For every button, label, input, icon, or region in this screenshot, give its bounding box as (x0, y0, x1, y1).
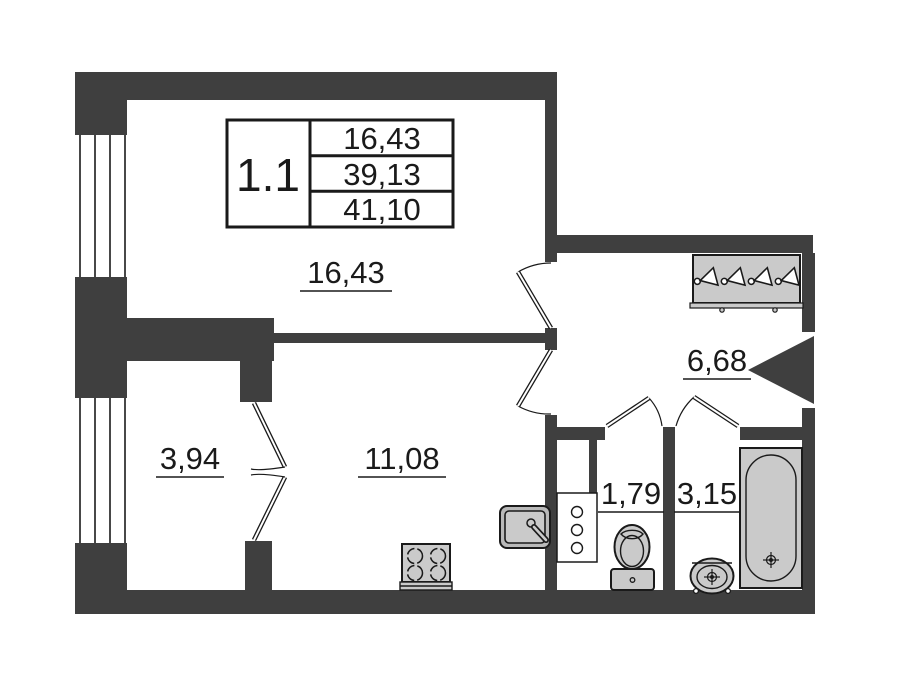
wc-door (607, 398, 662, 426)
toilet (611, 525, 654, 590)
floor-plan: 1.1 16,43 39,13 41,10 16,43 3,94 11,08 6… (0, 0, 900, 690)
bathtub (740, 448, 802, 588)
balcony-door (251, 403, 285, 540)
bathroom-sink (691, 559, 734, 594)
kitchen-sink (500, 506, 550, 548)
unit-area-room: 16,43 (343, 121, 421, 156)
room-label-balcony: 3,94 (160, 441, 220, 476)
room-label-kitchen: 11,08 (364, 441, 439, 476)
unit-number: 1.1 (236, 149, 300, 201)
stove (400, 544, 452, 590)
living-window (80, 135, 125, 277)
unit-area-living: 39,13 (343, 157, 421, 192)
floor-plan-canvas: 1.1 16,43 39,13 41,10 16,43 3,94 11,08 6… (0, 0, 900, 690)
utility-shaft (557, 493, 597, 562)
entrance-arrow-icon (748, 336, 814, 404)
balcony-window (80, 398, 125, 543)
wardrobe (690, 255, 803, 312)
bathroom-door (676, 397, 738, 426)
room-label-bath: 3,15 (677, 476, 737, 511)
unit-area-total: 41,10 (343, 192, 421, 227)
room-label-wc: 1,79 (601, 476, 661, 511)
room-label-hall: 6,68 (687, 343, 747, 378)
room-label-living: 16,43 (307, 255, 385, 290)
unit-table: 1.1 16,43 39,13 41,10 (227, 120, 453, 227)
living-room-door (518, 263, 551, 328)
kitchen-door (518, 350, 551, 414)
